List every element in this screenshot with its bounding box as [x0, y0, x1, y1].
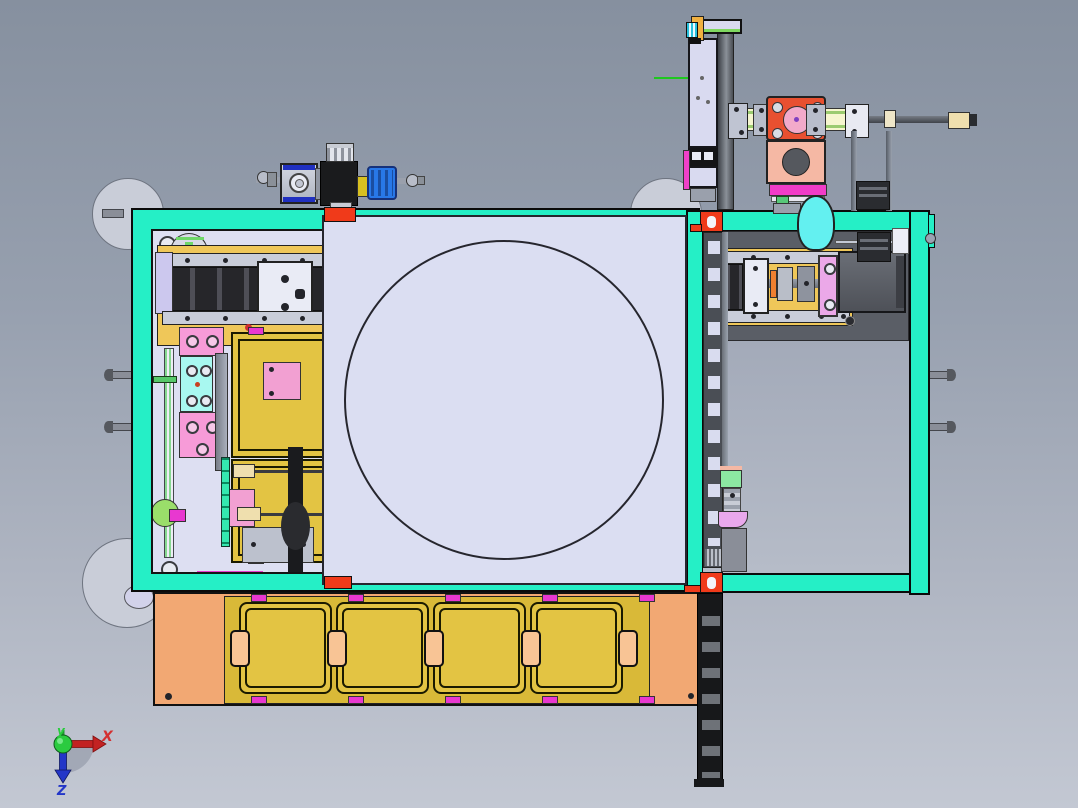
clip-magenta — [348, 696, 364, 704]
pink-block-upper[interactable] — [179, 327, 224, 356]
bracket-top-right-foot — [690, 224, 702, 232]
bearing-block-right — [845, 104, 869, 138]
clip-magenta — [639, 696, 655, 704]
cable-chain-slots — [702, 600, 720, 778]
frame-pin-left-2-cap — [104, 421, 113, 433]
magenta-accent — [683, 150, 690, 190]
tray-3[interactable] — [433, 602, 526, 694]
cyan-block[interactable] — [180, 356, 213, 412]
cyan-follower[interactable] — [797, 195, 835, 251]
frame-right-side-band[interactable] — [909, 210, 930, 595]
z-axis-arrowhead — [55, 770, 71, 783]
motor-mount-salmon[interactable] — [766, 140, 826, 184]
stripe — [859, 194, 887, 197]
divider-tab-3 — [424, 630, 444, 667]
dome-stripe — [176, 237, 204, 240]
cable-chain-foot — [694, 779, 724, 787]
bracket-bottom-right — [700, 572, 723, 593]
clip-magenta — [251, 594, 267, 602]
axis-triad[interactable]: X y Z — [40, 705, 160, 800]
roller-pin-top-left — [102, 209, 124, 218]
tower-foot — [690, 188, 716, 202]
tray-1-inner — [245, 608, 326, 688]
screw — [845, 316, 855, 326]
divider-tab-4 — [521, 630, 541, 667]
clip-magenta — [348, 594, 364, 602]
coupling-b — [797, 266, 815, 302]
stage-carriage[interactable] — [743, 258, 769, 314]
center-dot — [794, 117, 799, 122]
frame-right-bottom-band[interactable] — [703, 573, 911, 593]
tray-2-inner — [342, 608, 423, 688]
clip-magenta — [248, 327, 264, 335]
blue-edge — [283, 197, 315, 202]
silencer-cylinder — [326, 143, 354, 162]
stripe — [859, 187, 887, 190]
white-sliver — [892, 228, 909, 254]
base-plate[interactable] — [153, 592, 700, 706]
conveyor-end-block — [155, 252, 173, 314]
coupling-ring-orange — [770, 270, 777, 298]
tray-2[interactable] — [336, 602, 429, 694]
bracket-slot — [707, 577, 716, 589]
frame-mid-band[interactable] — [686, 210, 704, 593]
conveyor-rail-bottom — [162, 311, 328, 325]
bracket-top-right — [700, 211, 723, 232]
valve-right-tip — [417, 176, 425, 185]
cyan-connector — [686, 22, 698, 38]
blue-connector[interactable] — [367, 166, 397, 200]
mount-bore — [782, 148, 810, 176]
motor-flange-violet[interactable] — [818, 255, 838, 317]
origin-highlight — [57, 738, 63, 744]
screw — [688, 693, 694, 699]
y-axis-label: y — [57, 724, 66, 738]
valve-left-nut — [267, 172, 277, 187]
bracket-slot — [707, 216, 716, 228]
cap-line — [327, 144, 353, 148]
tray-4-inner — [536, 608, 617, 688]
frame-pin-right-1-cap — [947, 369, 956, 381]
x-axis-label: X — [101, 729, 114, 745]
nozzle-body-2 — [237, 507, 261, 521]
cable-chain-lower[interactable] — [697, 593, 723, 783]
valve-gray-body[interactable] — [280, 163, 318, 204]
frame-pin-left-1-cap — [104, 369, 113, 381]
red-dot — [195, 382, 200, 387]
divider-tab-2 — [327, 630, 347, 667]
solenoid-block[interactable] — [320, 161, 358, 206]
clip-magenta — [251, 696, 267, 704]
stripe — [860, 247, 888, 250]
nozzle-body-1 — [233, 464, 255, 478]
ribs — [371, 170, 393, 196]
slot — [704, 152, 713, 160]
screw — [165, 693, 172, 700]
blue-edge — [283, 165, 315, 170]
end-tip — [969, 114, 977, 126]
cad-viewport[interactable]: X y Z — [0, 0, 1078, 808]
plate-circle — [344, 240, 664, 560]
clip-magenta — [639, 594, 655, 602]
magenta-strip-mount — [769, 184, 827, 196]
green-pin — [153, 376, 177, 383]
gray-block — [721, 528, 747, 572]
tray-4[interactable] — [530, 602, 623, 694]
z-axis-label: Z — [56, 784, 67, 799]
clip-magenta — [542, 696, 558, 704]
bracket-bottom-right-foot — [684, 585, 701, 593]
bracket-top-left — [324, 207, 356, 222]
bracket-bottom-left — [324, 576, 352, 589]
green-sensor-strip — [221, 457, 230, 547]
bearing-block-left — [728, 103, 748, 139]
slot — [692, 152, 701, 160]
rod-collar — [884, 110, 896, 128]
tower-body[interactable] — [688, 38, 718, 148]
sketch-line-green — [654, 77, 688, 79]
pink-tab — [263, 362, 301, 400]
tower-body-lower — [688, 166, 718, 188]
tray-3-inner — [439, 608, 520, 688]
connector-base — [689, 38, 701, 44]
frame-knob — [925, 233, 936, 244]
shaft-clamp-right — [806, 104, 826, 136]
support-column — [215, 353, 228, 471]
port-inner — [295, 179, 304, 188]
frame-pin-right-2-cap — [947, 421, 956, 433]
end-fitting — [948, 112, 970, 129]
actuator-disc — [281, 502, 310, 550]
green-block[interactable] — [720, 470, 742, 488]
magenta-plate — [169, 509, 186, 522]
tower-black-section — [688, 148, 718, 166]
tower-top-bar — [701, 19, 742, 34]
chain-end-stripes — [705, 549, 721, 566]
motor-endcap — [896, 256, 904, 308]
tray-1[interactable] — [239, 602, 332, 694]
extension-rod — [869, 116, 951, 123]
stripe — [860, 239, 888, 242]
clip-magenta — [445, 594, 461, 602]
clip-magenta — [445, 696, 461, 704]
vertical-rod — [722, 232, 728, 467]
clip-magenta — [542, 594, 558, 602]
cylinder-stack — [723, 488, 741, 512]
coupling-a — [777, 267, 793, 301]
divider-tab-1 — [230, 630, 250, 667]
washer — [161, 561, 178, 574]
sensor-box-upper — [856, 181, 890, 210]
divider-tab-5 — [618, 630, 638, 667]
green-edge — [703, 29, 740, 32]
clamp-small — [773, 203, 801, 214]
magenta-strip — [197, 571, 263, 574]
chain-links — [708, 241, 720, 546]
sensor-box-lower — [857, 232, 891, 262]
